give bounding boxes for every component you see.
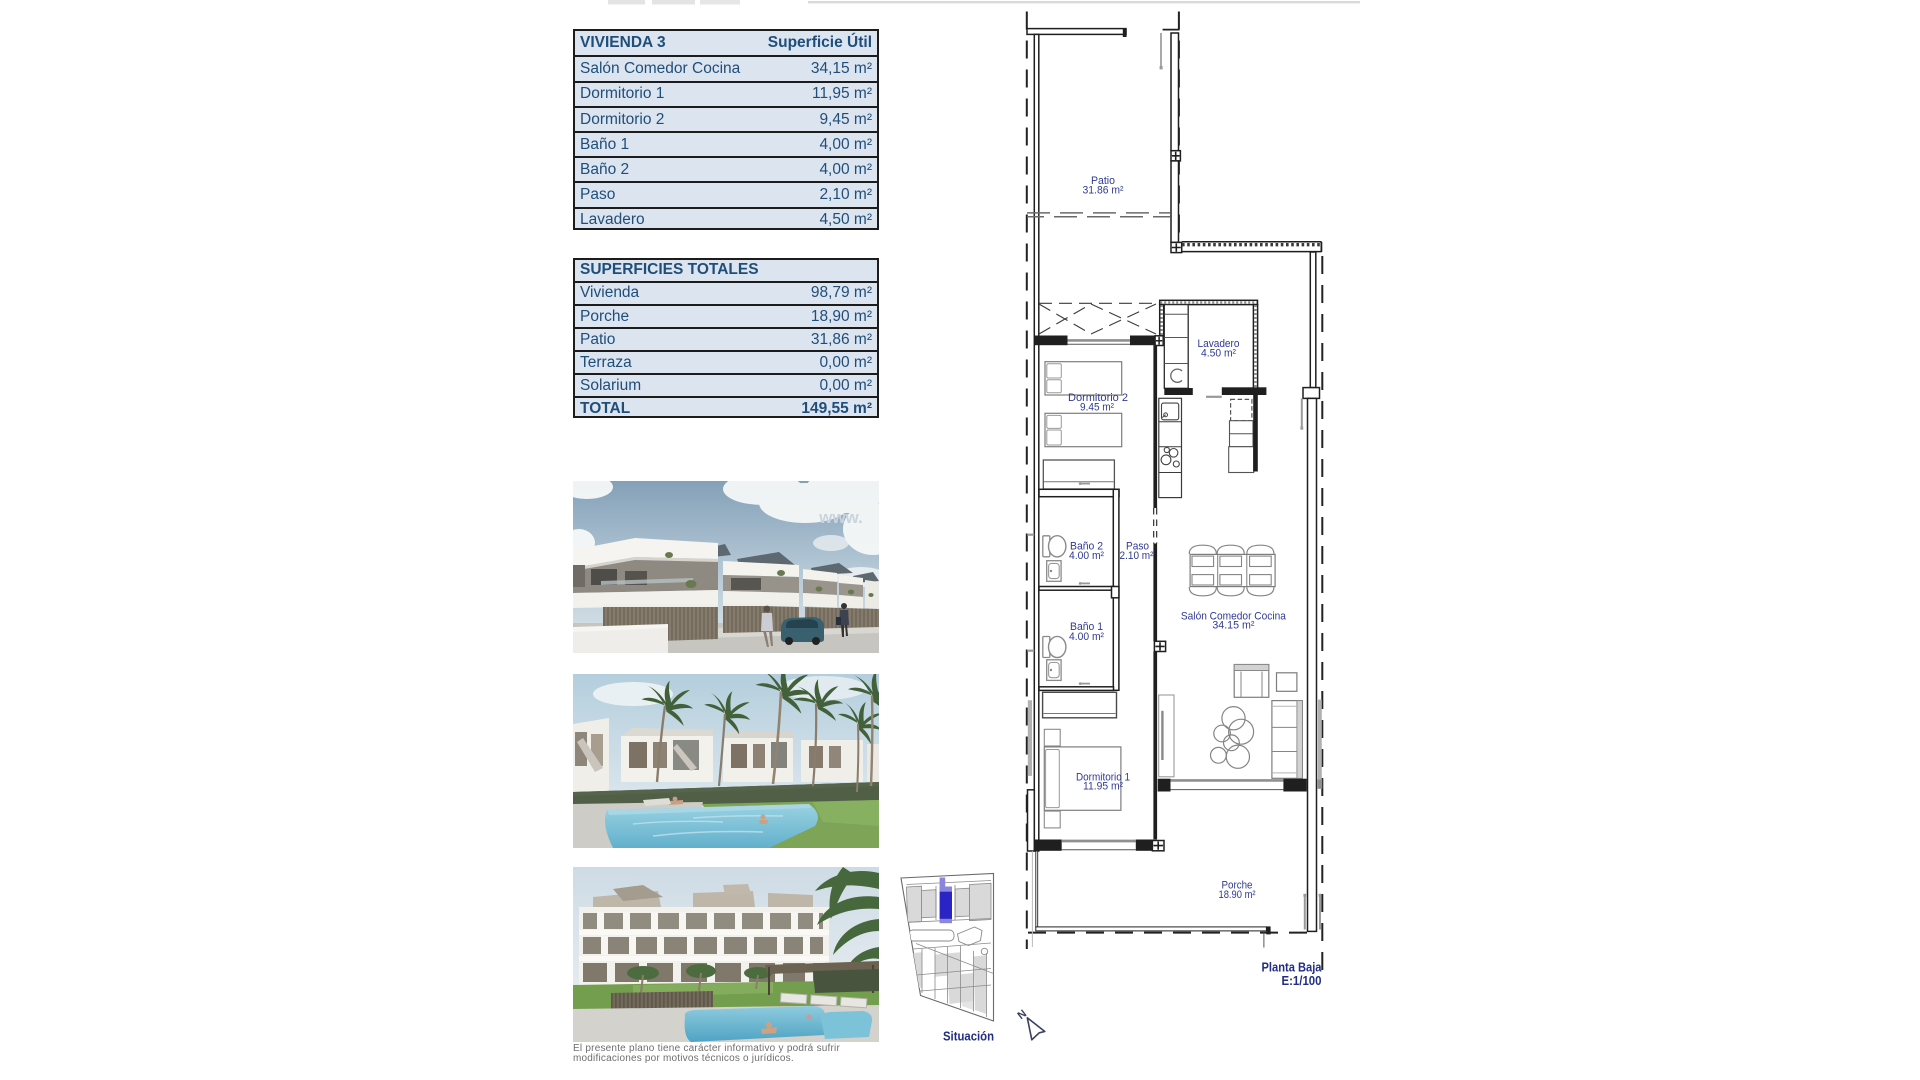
svg-text:31.86 m²: 31.86 m²	[1083, 185, 1124, 197]
svg-text:34.15 m²: 34.15 m²	[1212, 620, 1254, 632]
svg-text:18.90 m²: 18.90 m²	[1219, 889, 1256, 901]
svg-text:2.10 m²: 2.10 m²	[1120, 550, 1154, 562]
svg-text:Situación: Situación	[943, 1028, 994, 1043]
svg-text:4.00 m²: 4.00 m²	[1069, 631, 1104, 643]
svg-text:www.: www.	[818, 508, 863, 527]
svg-text:11.95 m²: 11.95 m²	[1083, 781, 1123, 793]
svg-text:4.00 m²: 4.00 m²	[1069, 550, 1104, 562]
svg-text:9.45 m²: 9.45 m²	[1080, 402, 1114, 414]
svg-text:E:1/100: E:1/100	[1282, 973, 1322, 988]
svg-text:4.50 m²: 4.50 m²	[1201, 347, 1236, 359]
